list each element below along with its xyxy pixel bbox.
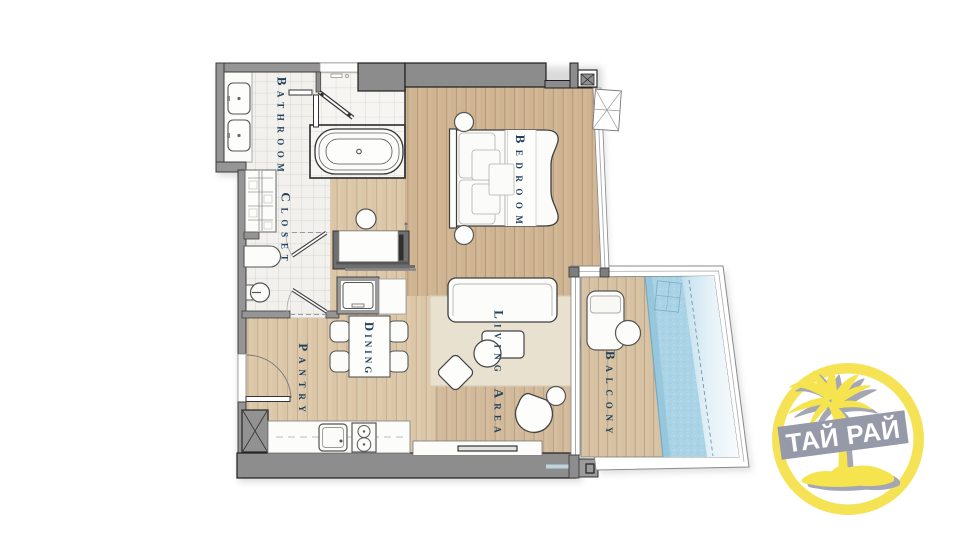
svg-text:Closet: Closet: [279, 192, 294, 266]
svg-text:Bathroom: Bathroom: [275, 77, 290, 178]
svg-text:Bedroom: Bedroom: [513, 135, 528, 231]
svg-text:Dining: Dining: [362, 322, 377, 376]
svg-text:Balcony: Balcony: [603, 351, 618, 439]
svg-text:Living Area: Living Area: [492, 310, 507, 438]
svg-text:Pantry: Pantry: [296, 343, 311, 417]
